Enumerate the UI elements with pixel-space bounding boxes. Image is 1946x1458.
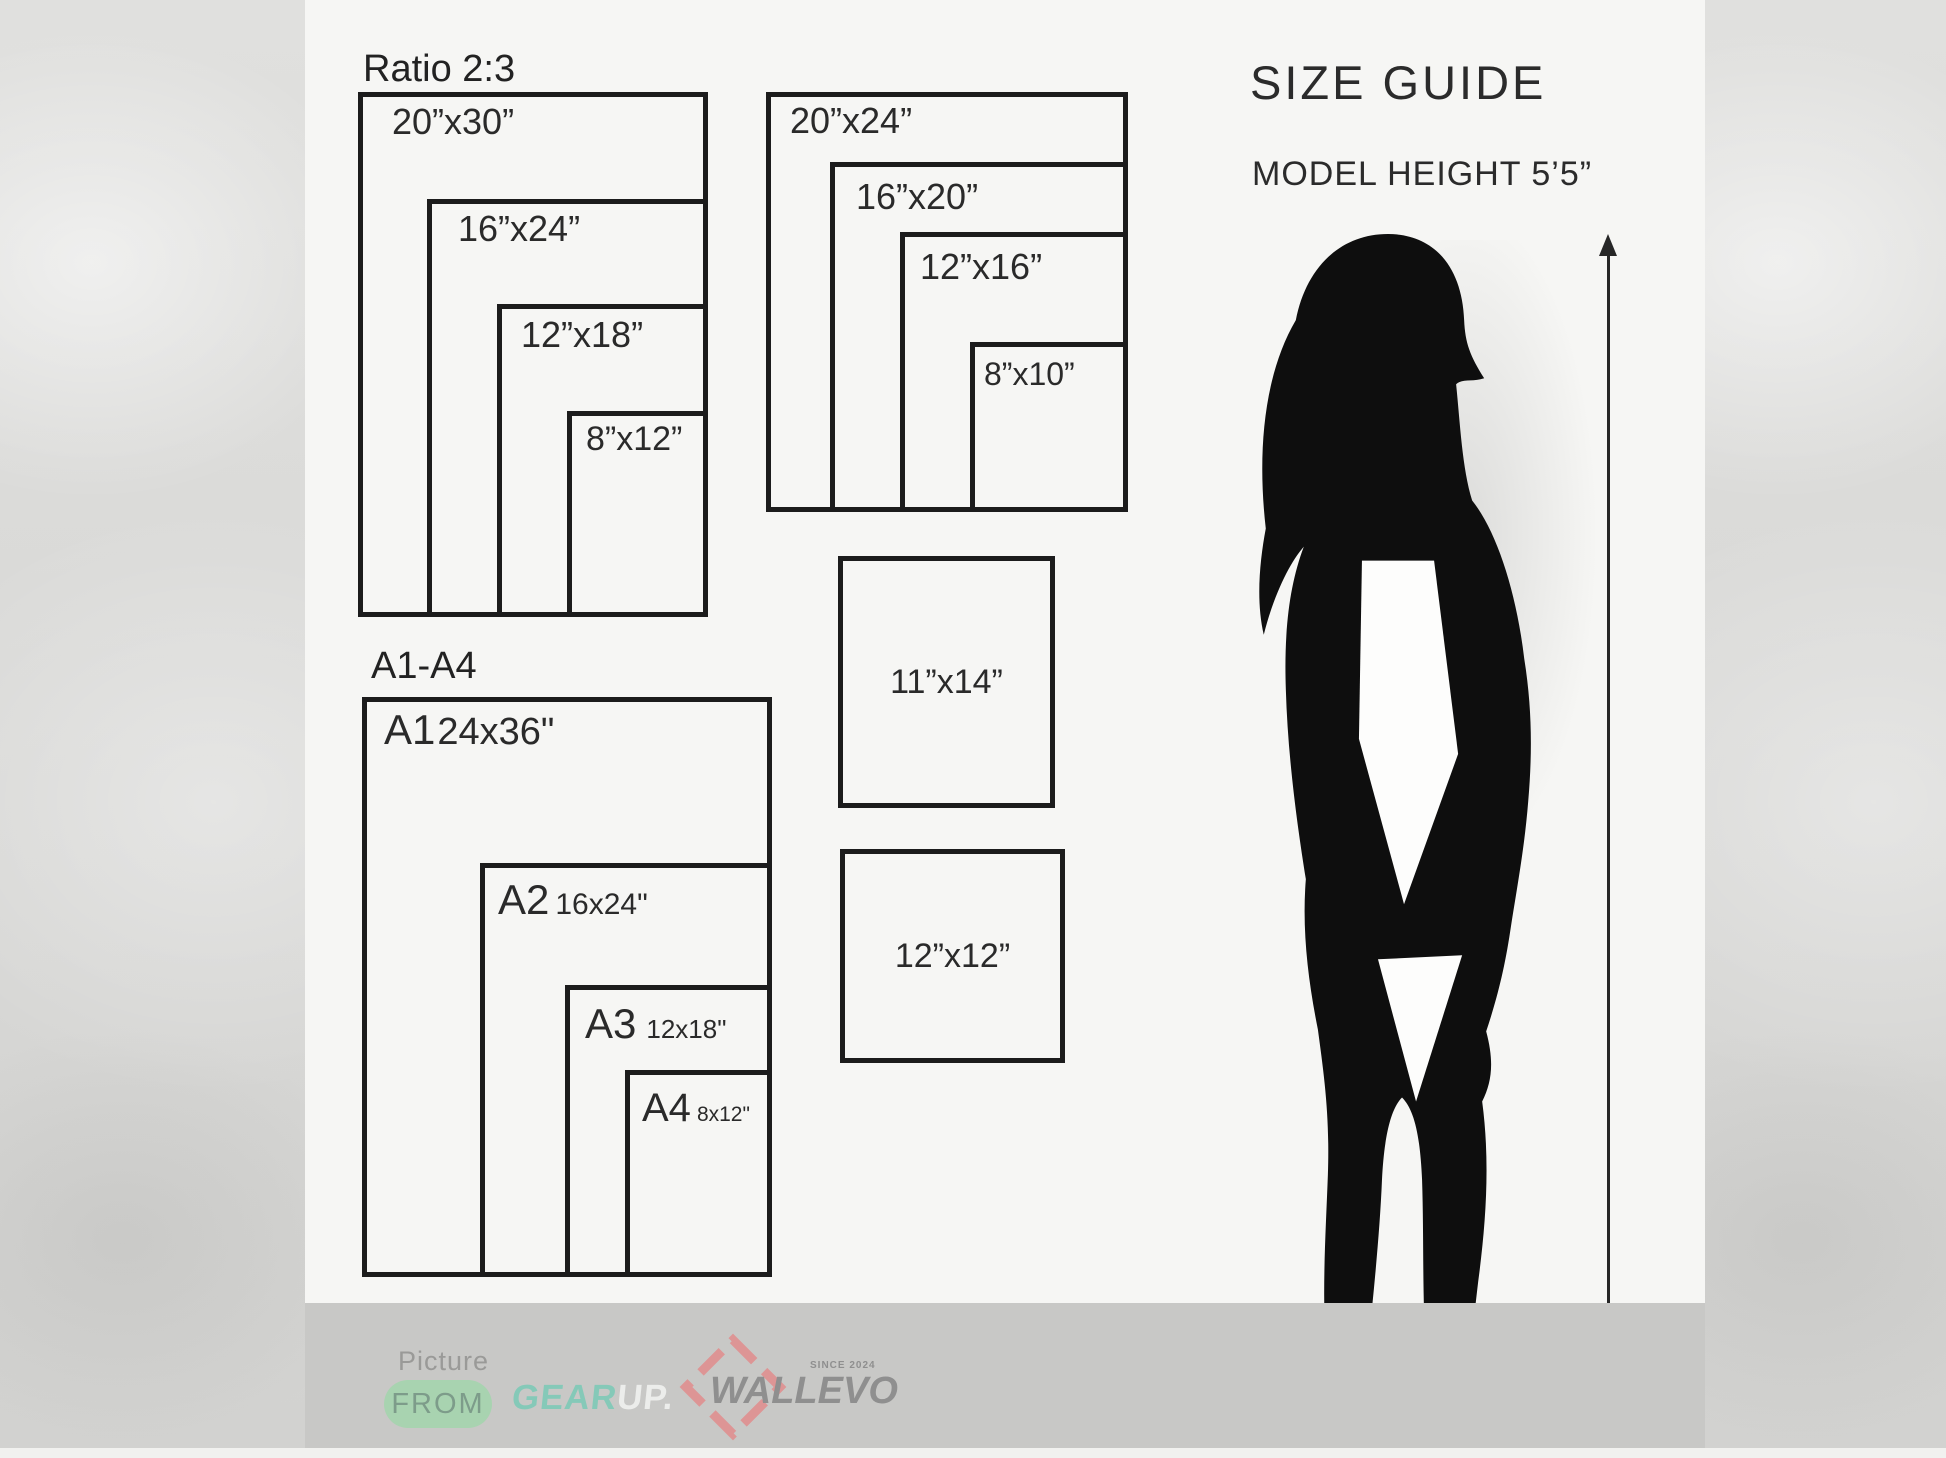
woman-silhouette-graphic [1205, 228, 1575, 1358]
a4-code: A4 [642, 1086, 691, 1131]
right-texture-background [1705, 0, 1946, 1458]
ratio-group-title: Ratio 2:3 [363, 48, 515, 91]
from-badge: FROM [384, 1380, 492, 1428]
gearup-logo: GEARUP. [510, 1378, 676, 1418]
wallevo-logo: SINCE 2024 WALLEVO [678, 1332, 898, 1442]
a-series-title: A1-A4 [371, 645, 477, 688]
size-label-12x18: 12”x18” [521, 314, 643, 356]
size-label-20x30: 20”x30” [392, 101, 514, 143]
footer-band [305, 1303, 1705, 1448]
size-label-a1: A1 24x36" [384, 706, 554, 754]
size-rect-12x12: 12”x12” [840, 849, 1065, 1063]
size-rect-11x14: 11”x14” [838, 556, 1055, 808]
from-badge-label: FROM [391, 1388, 484, 1421]
bottom-strip [0, 1448, 1946, 1458]
size-label-12x12: 12”x12” [895, 937, 1010, 976]
size-label-11x14: 11”x14” [890, 663, 1003, 702]
a1-code: A1 [384, 706, 435, 754]
height-arrow-line [1607, 250, 1610, 1336]
size-label-a3: A3 12x18" [585, 1000, 726, 1048]
size-label-12x16: 12”x16” [920, 246, 1042, 288]
picture-label: Picture [398, 1346, 489, 1377]
a1-dims: 24x36" [437, 711, 554, 754]
size-label-16x20: 16”x20” [856, 176, 978, 218]
gearup-logo-gear: GEAR [510, 1378, 619, 1417]
size-label-8x12: 8”x12” [586, 420, 682, 459]
a2-code: A2 [498, 876, 549, 924]
size-label-8x10: 8”x10” [984, 356, 1075, 393]
left-texture-background [0, 0, 305, 1458]
gearup-logo-up: UP. [615, 1378, 676, 1417]
page-title: SIZE GUIDE [1250, 55, 1546, 110]
a3-dims: 12x18" [646, 1014, 726, 1045]
size-guide-infographic: Ratio 2:3 20”x30” 16”x24” 12”x18” 8”x12”… [0, 0, 1946, 1458]
a4-dims: 8x12" [697, 1103, 750, 1127]
wallevo-wordmark: WALLEVO [710, 1370, 898, 1413]
size-label-20x24: 20”x24” [790, 100, 912, 142]
model-silhouette [1205, 228, 1575, 1358]
size-label-a2: A2 16x24" [498, 876, 648, 924]
size-label-16x24: 16”x24” [458, 208, 580, 250]
a3-code: A3 [585, 1000, 636, 1048]
model-height-label: MODEL HEIGHT 5’5” [1252, 155, 1592, 194]
a2-dims: 16x24" [555, 888, 647, 922]
size-label-a4: A4 8x12" [642, 1086, 750, 1131]
height-arrow-up-icon [1599, 234, 1617, 256]
